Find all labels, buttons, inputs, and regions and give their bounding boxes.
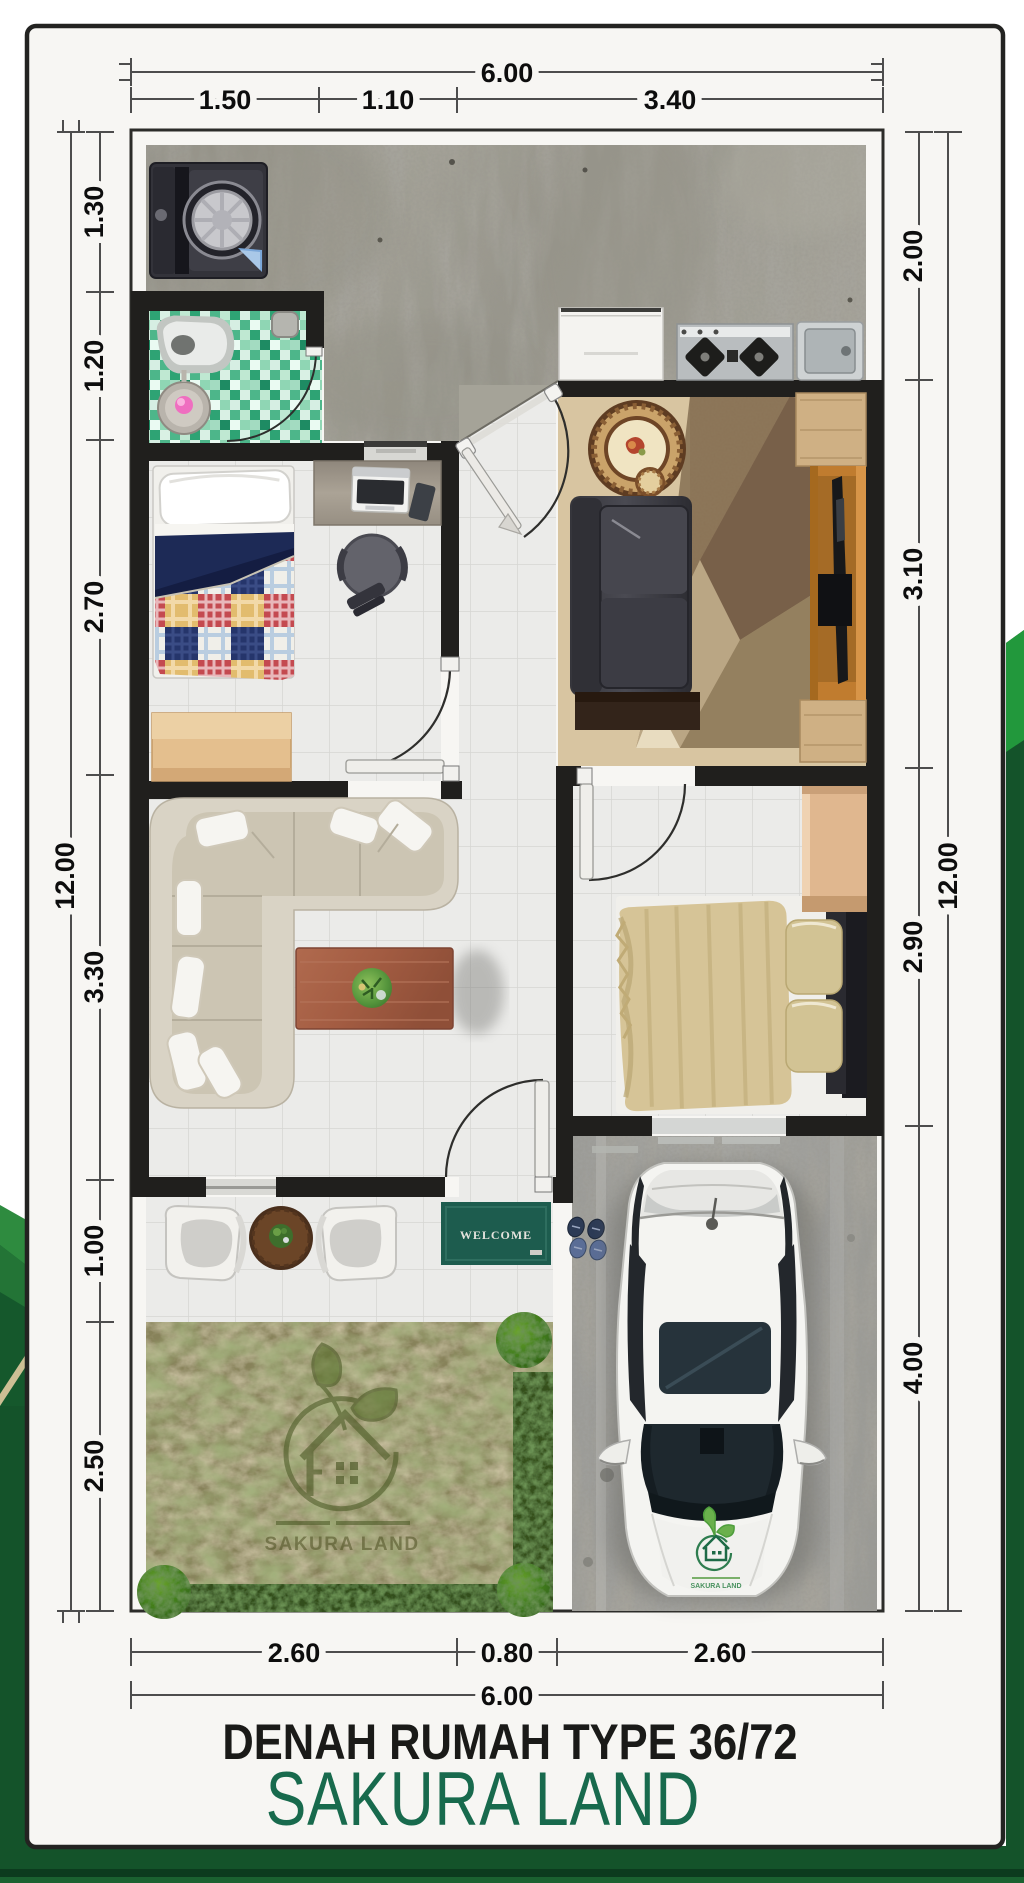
svg-text:WELCOME: WELCOME [460, 1228, 532, 1242]
svg-text:2.50: 2.50 [79, 1440, 109, 1493]
svg-text:1.10: 1.10 [362, 85, 415, 115]
svg-text:2.60: 2.60 [694, 1638, 747, 1668]
svg-text:SAKURA LAND: SAKURA LAND [690, 1583, 741, 1590]
svg-text:6.00: 6.00 [481, 1681, 534, 1711]
svg-text:1.20: 1.20 [79, 340, 109, 393]
svg-text:0.80: 0.80 [481, 1638, 534, 1668]
svg-text:2.90: 2.90 [898, 921, 928, 974]
svg-text:3.30: 3.30 [79, 951, 109, 1004]
svg-text:SAKURA LAND: SAKURA LAND [266, 1757, 701, 1842]
svg-text:6.00: 6.00 [481, 58, 534, 88]
svg-text:12.00: 12.00 [933, 842, 963, 910]
svg-text:2.70: 2.70 [79, 581, 109, 634]
svg-text:SAKURA LAND: SAKURA LAND [264, 1534, 419, 1555]
svg-text:2.60: 2.60 [268, 1638, 321, 1668]
svg-text:12.00: 12.00 [50, 842, 80, 910]
svg-text:1.00: 1.00 [79, 1225, 109, 1278]
svg-text:1.30: 1.30 [79, 186, 109, 239]
svg-text:3.40: 3.40 [644, 85, 697, 115]
svg-text:1.50: 1.50 [199, 85, 252, 115]
svg-text:2.00: 2.00 [898, 230, 928, 283]
svg-text:4.00: 4.00 [898, 1342, 928, 1395]
svg-text:3.10: 3.10 [898, 548, 928, 601]
